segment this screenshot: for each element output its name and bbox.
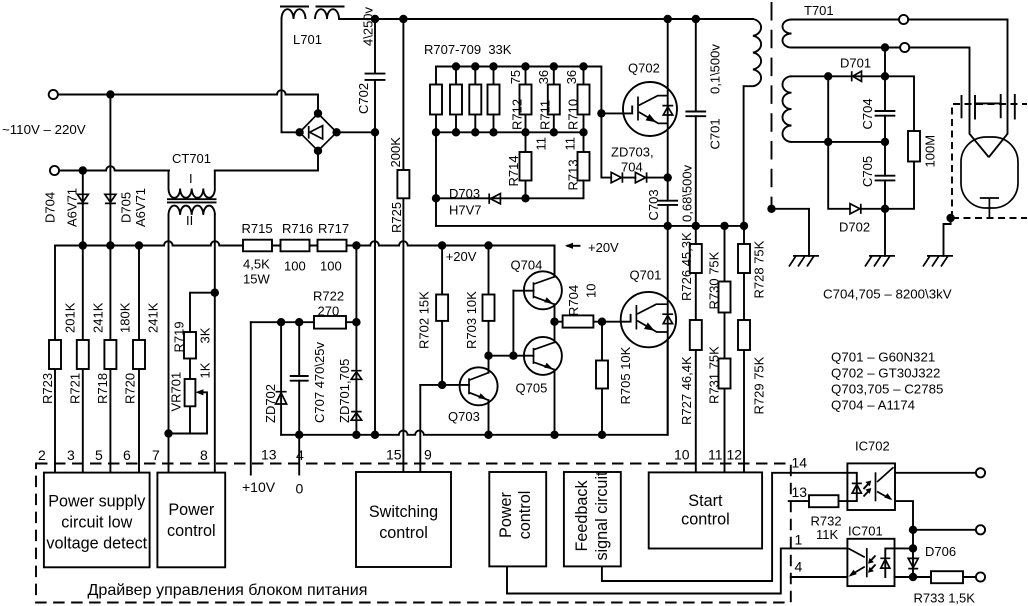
svg-text:201K: 201K bbox=[63, 302, 78, 333]
svg-text:Q702: Q702 bbox=[628, 61, 660, 76]
svg-text:R707-709 33K: R707-709 33K bbox=[424, 42, 512, 57]
svg-text:Q702 – GT30J322: Q702 – GT30J322 bbox=[831, 366, 940, 381]
svg-text:75: 75 bbox=[508, 70, 523, 84]
svg-text:R729 75K: R729 75K bbox=[752, 356, 767, 414]
svg-text:11: 11 bbox=[534, 137, 549, 151]
svg-text:Q704: Q704 bbox=[511, 258, 543, 273]
svg-text:Power: Power bbox=[497, 491, 515, 537]
svg-text:R715: R715 bbox=[242, 221, 273, 236]
svg-text:4: 4 bbox=[296, 447, 304, 463]
svg-text:7: 7 bbox=[152, 447, 160, 463]
svg-text:200K: 200K bbox=[388, 137, 403, 168]
svg-text:R726 45,3K: R726 45,3K bbox=[679, 232, 694, 301]
svg-text:1: 1 bbox=[795, 532, 803, 548]
svg-text:241K: 241K bbox=[146, 302, 161, 333]
svg-text:+10V: +10V bbox=[242, 479, 276, 495]
svg-text:R703 10K: R703 10K bbox=[464, 291, 479, 349]
svg-text:Power: Power bbox=[168, 501, 214, 519]
svg-text:+20V: +20V bbox=[588, 240, 619, 255]
svg-text:ZD701,705: ZD701,705 bbox=[337, 359, 352, 423]
svg-text:11: 11 bbox=[563, 137, 578, 151]
svg-text:control: control bbox=[516, 491, 534, 540]
svg-text:9: 9 bbox=[424, 447, 432, 463]
svg-text:36: 36 bbox=[536, 70, 551, 84]
svg-text:voltage detect: voltage detect bbox=[46, 535, 147, 553]
svg-text:R705 10K: R705 10K bbox=[618, 346, 633, 404]
svg-text:270: 270 bbox=[318, 304, 340, 319]
svg-text:R728 75K: R728 75K bbox=[752, 240, 767, 298]
svg-text:H7V7: H7V7 bbox=[449, 203, 482, 218]
svg-text:0,68\500v: 0,68\500v bbox=[680, 164, 695, 222]
svg-text:180K: 180K bbox=[118, 302, 133, 333]
svg-text:C702: C702 bbox=[356, 83, 371, 114]
svg-text:CT701: CT701 bbox=[172, 151, 211, 166]
svg-text:R733 1,5K: R733 1,5K bbox=[914, 591, 976, 606]
svg-text:C705: C705 bbox=[860, 156, 875, 187]
svg-text:10: 10 bbox=[674, 447, 690, 463]
svg-text:5: 5 bbox=[95, 447, 103, 463]
svg-text:100: 100 bbox=[320, 259, 342, 274]
svg-text:1K: 1K bbox=[198, 362, 213, 378]
svg-text:Q703,705 – C2785: Q703,705 – C2785 bbox=[831, 382, 943, 397]
svg-text:R704: R704 bbox=[566, 285, 581, 316]
svg-text:12: 12 bbox=[727, 447, 743, 463]
svg-text:C704: C704 bbox=[860, 98, 875, 129]
svg-text:14: 14 bbox=[792, 455, 808, 471]
svg-text:ZD702: ZD702 bbox=[263, 384, 278, 423]
svg-text:control: control bbox=[681, 511, 730, 529]
svg-text:100M: 100M bbox=[923, 135, 938, 168]
svg-text:+20V: +20V bbox=[446, 249, 477, 264]
svg-text:IC702: IC702 bbox=[855, 439, 890, 454]
svg-text:4: 4 bbox=[795, 559, 803, 575]
svg-text:IC701: IC701 bbox=[848, 524, 883, 539]
svg-text:R721: R721 bbox=[68, 373, 83, 404]
svg-text:signal circuit: signal circuit bbox=[593, 471, 611, 561]
svg-text:3K: 3K bbox=[198, 327, 213, 343]
svg-text:R702 15K: R702 15K bbox=[417, 291, 432, 349]
svg-text:R714: R714 bbox=[506, 155, 521, 186]
svg-text:D702: D702 bbox=[839, 220, 870, 235]
svg-text:R710: R710 bbox=[566, 99, 581, 130]
svg-text:13: 13 bbox=[792, 484, 808, 500]
svg-text:8: 8 bbox=[200, 447, 208, 463]
svg-text:R727 46,4K: R727 46,4K bbox=[679, 356, 694, 425]
svg-text:R713: R713 bbox=[566, 159, 581, 190]
svg-text:100: 100 bbox=[284, 259, 306, 274]
svg-text:15W: 15W bbox=[243, 272, 270, 287]
svg-text:control: control bbox=[167, 522, 216, 540]
svg-text:ZD703,: ZD703, bbox=[611, 145, 654, 160]
svg-text:D703: D703 bbox=[449, 186, 480, 201]
svg-text:C704,705 – 8200\3kV: C704,705 – 8200\3kV bbox=[823, 287, 952, 302]
svg-text:36: 36 bbox=[564, 70, 579, 84]
svg-text:circuit low: circuit low bbox=[61, 514, 132, 532]
svg-text:15: 15 bbox=[386, 447, 402, 463]
svg-text:A6V71: A6V71 bbox=[133, 188, 148, 227]
svg-text:0,1\500v: 0,1\500v bbox=[708, 44, 723, 94]
svg-text:4\250v: 4\250v bbox=[361, 6, 376, 46]
svg-text:C707 470\25v: C707 470\25v bbox=[312, 342, 327, 423]
svg-text:D705: D705 bbox=[119, 192, 134, 223]
svg-text:Switching: Switching bbox=[369, 503, 438, 521]
svg-text:R718: R718 bbox=[95, 373, 110, 404]
svg-text:3: 3 bbox=[67, 447, 75, 463]
svg-text:Q701 – G60N321: Q701 – G60N321 bbox=[831, 350, 935, 365]
svg-text:11K: 11K bbox=[816, 527, 838, 542]
svg-text:R716: R716 bbox=[282, 221, 313, 236]
svg-text:A6V71: A6V71 bbox=[65, 188, 80, 227]
svg-text:Q701: Q701 bbox=[630, 268, 662, 283]
svg-text:Q703: Q703 bbox=[448, 409, 480, 424]
svg-text:~110V – 220V: ~110V – 220V bbox=[2, 122, 86, 137]
svg-text:Power supply: Power supply bbox=[48, 493, 146, 511]
svg-text:C703: C703 bbox=[646, 189, 661, 220]
svg-text:241K: 241K bbox=[91, 302, 106, 333]
svg-text:R720: R720 bbox=[123, 373, 138, 404]
svg-text:R723: R723 bbox=[40, 373, 55, 404]
svg-text:13: 13 bbox=[261, 447, 277, 463]
svg-text:C701: C701 bbox=[708, 118, 723, 149]
svg-text:R725: R725 bbox=[389, 202, 404, 233]
svg-text:Драйвер управления блоком пита: Драйвер управления блоком питания bbox=[88, 581, 368, 599]
svg-text:R730 75K: R730 75K bbox=[707, 251, 722, 309]
svg-text:Feedback: Feedback bbox=[573, 480, 591, 552]
svg-text:6: 6 bbox=[123, 447, 131, 463]
svg-text:control: control bbox=[379, 524, 428, 542]
svg-text:2: 2 bbox=[38, 447, 46, 463]
svg-text:4,5K: 4,5K bbox=[243, 257, 270, 272]
svg-text:R722: R722 bbox=[313, 289, 344, 304]
svg-text:I: I bbox=[189, 171, 193, 186]
svg-text:R711: R711 bbox=[538, 100, 553, 130]
svg-text:Q705: Q705 bbox=[516, 381, 548, 396]
svg-text:D701: D701 bbox=[840, 56, 871, 71]
svg-text:704: 704 bbox=[621, 160, 643, 175]
svg-text:II: II bbox=[186, 213, 193, 228]
svg-text:Start: Start bbox=[688, 492, 723, 510]
svg-text:11: 11 bbox=[708, 447, 723, 463]
svg-text:10: 10 bbox=[584, 284, 599, 298]
svg-text:D704: D704 bbox=[43, 192, 58, 223]
svg-text:VR701: VR701 bbox=[169, 372, 184, 412]
svg-text:T701: T701 bbox=[804, 3, 834, 18]
svg-text:R717: R717 bbox=[318, 221, 349, 236]
svg-text:L701: L701 bbox=[293, 32, 322, 47]
svg-text:Q704 – A1174: Q704 – A1174 bbox=[831, 398, 915, 413]
svg-text:R712: R712 bbox=[510, 99, 525, 130]
svg-text:R731 75K: R731 75K bbox=[707, 346, 722, 404]
svg-text:R719: R719 bbox=[172, 321, 187, 352]
svg-text:0: 0 bbox=[296, 481, 304, 497]
svg-text:D706: D706 bbox=[925, 544, 956, 559]
